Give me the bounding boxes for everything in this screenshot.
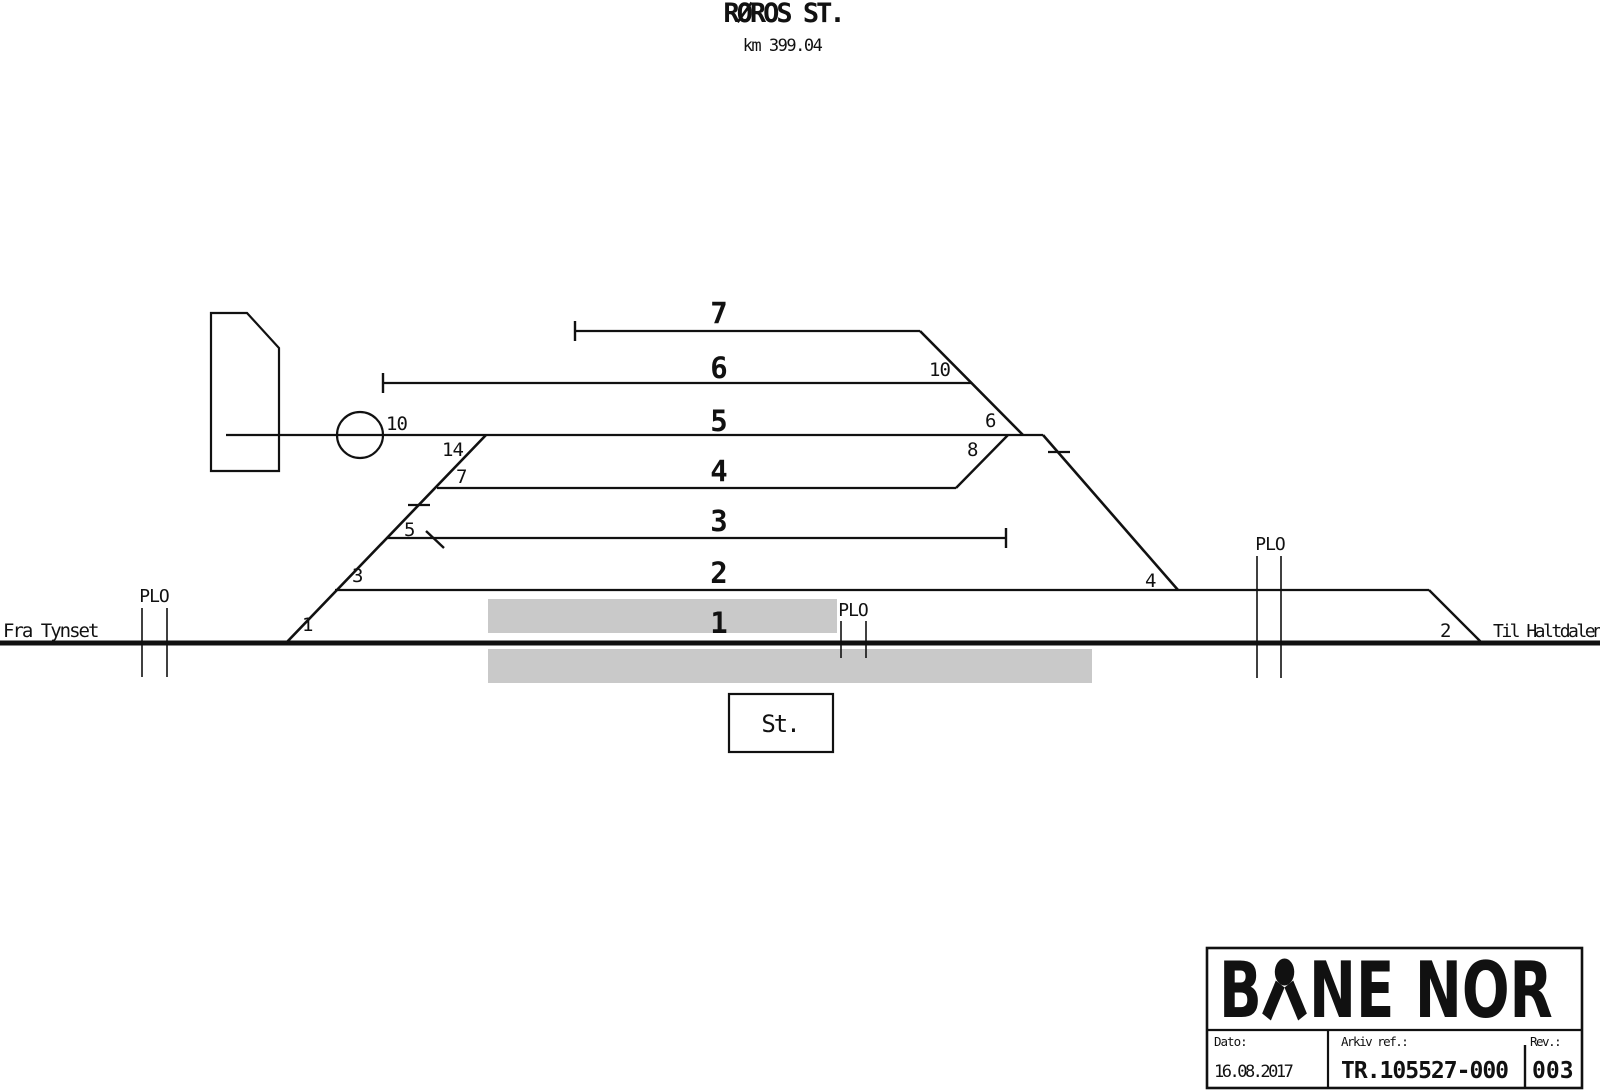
plo-center-label: PLO: [838, 600, 868, 621]
dato-value: 16.08.2017: [1214, 1062, 1293, 1082]
derail-mark-track-3: [426, 531, 444, 548]
switch-4-label: 4: [1145, 570, 1156, 592]
track-3-number: 3: [710, 504, 727, 538]
rev-value: 003: [1532, 1058, 1574, 1084]
route-label-west: Fra Tynset: [3, 620, 98, 642]
rev-label: Rev.:: [1530, 1034, 1560, 1049]
track-1-number: 1: [710, 606, 727, 640]
route-label-east: Til Haltdalen: [1493, 621, 1600, 642]
track-4-number: 4: [710, 454, 727, 488]
title-block: B NE NOR Dato: 16.08.2017 Arkiv ref.: TR…: [1207, 946, 1582, 1088]
logo-letters-ne: NE: [1309, 946, 1394, 1037]
plo-right-marker: [1257, 556, 1281, 678]
track-2-east-switch-diagonal: [1429, 590, 1482, 643]
plo-right-label: PLO: [1255, 534, 1285, 555]
platform-lower: [488, 649, 1092, 683]
km-position-label: km 399.04: [743, 36, 823, 56]
switch-14-label: 14: [442, 439, 463, 461]
logo-letters-nor: NOR: [1415, 946, 1553, 1037]
track-4-east-merge-diagonal: [956, 435, 1008, 488]
switch-2-label: 2: [1440, 620, 1450, 642]
track-6-number: 6: [710, 351, 727, 385]
track-schematic: RØROS ST. km 399.04 Fra Tynset Til Haltd…: [0, 0, 1600, 1090]
arkiv-ref-label: Arkiv ref.:: [1341, 1034, 1407, 1049]
engine-shed-building: [211, 313, 279, 471]
station-box-label: St.: [761, 710, 798, 738]
dato-label: Dato:: [1214, 1034, 1247, 1049]
track-5-number: 5: [710, 404, 727, 438]
arkiv-ref-value: TR.105527-000: [1341, 1058, 1508, 1084]
switch-3-label: 3: [352, 565, 363, 587]
track-2-number: 2: [710, 556, 727, 590]
track-schematic-page: RØROS ST. km 399.04 Fra Tynset Til Haltd…: [0, 0, 1600, 1090]
switch-10-label: 10: [929, 359, 950, 381]
page-title: RØROS ST.: [723, 0, 842, 29]
logo-letter-b: B: [1219, 946, 1262, 1037]
east-lower-ladder-diagonal: [1043, 435, 1178, 590]
turntable-number-label: 10: [386, 413, 407, 435]
switch-7-label: 7: [456, 466, 467, 488]
switch-8-label: 8: [967, 439, 978, 461]
track-7-number: 7: [710, 296, 727, 330]
switch-5-label: 5: [404, 519, 414, 541]
switch-6-label: 6: [985, 410, 996, 432]
platform-upper: [488, 599, 837, 633]
switch-1-label: 1: [302, 614, 313, 636]
plo-left-label: PLO: [139, 586, 169, 607]
